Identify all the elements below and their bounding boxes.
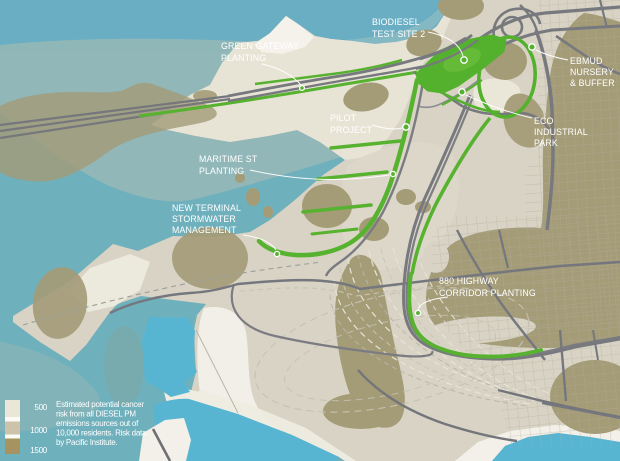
- svg-text:MARITIME ST: MARITIME ST: [199, 154, 258, 164]
- svg-text:emissions sources out of: emissions sources out of: [56, 419, 139, 428]
- svg-text:PILOT: PILOT: [330, 113, 357, 123]
- svg-text:PARK: PARK: [534, 138, 558, 148]
- svg-text:NURSERY: NURSERY: [570, 67, 614, 77]
- svg-text:10,000 residents. Risk data: 10,000 residents. Risk data: [56, 429, 147, 438]
- svg-text:Estimated potential cancer: Estimated potential cancer: [56, 400, 144, 409]
- svg-text:NEW TERMINAL: NEW TERMINAL: [172, 203, 241, 213]
- svg-text:PROJECT: PROJECT: [330, 125, 373, 135]
- svg-text:880 HIGHWAY: 880 HIGHWAY: [439, 276, 499, 286]
- svg-text:STORMWATER: STORMWATER: [172, 214, 236, 224]
- svg-text:1500: 1500: [30, 446, 48, 455]
- svg-text:risk from all DIESEL PM: risk from all DIESEL PM: [56, 410, 136, 419]
- svg-text:& BUFFER: & BUFFER: [570, 78, 615, 88]
- svg-text:500: 500: [34, 403, 47, 412]
- svg-text:BIODIESEL: BIODIESEL: [372, 17, 420, 27]
- svg-text:1000: 1000: [30, 426, 48, 435]
- svg-text:by Pacific Institute.: by Pacific Institute.: [56, 438, 117, 447]
- svg-text:PLANTING: PLANTING: [221, 53, 266, 63]
- svg-text:MANAGEMENT: MANAGEMENT: [172, 225, 237, 235]
- svg-text:TEST SITE 2: TEST SITE 2: [372, 29, 425, 39]
- svg-text:GREEN GATEWAY: GREEN GATEWAY: [221, 41, 299, 51]
- svg-text:PLANTING: PLANTING: [199, 166, 244, 176]
- svg-text:ECO: ECO: [534, 116, 554, 126]
- svg-text:CORRIDOR PLANTING: CORRIDOR PLANTING: [439, 288, 536, 298]
- svg-text:EBMUD: EBMUD: [570, 56, 603, 66]
- svg-text:INDUSTRIAL: INDUSTRIAL: [534, 127, 588, 137]
